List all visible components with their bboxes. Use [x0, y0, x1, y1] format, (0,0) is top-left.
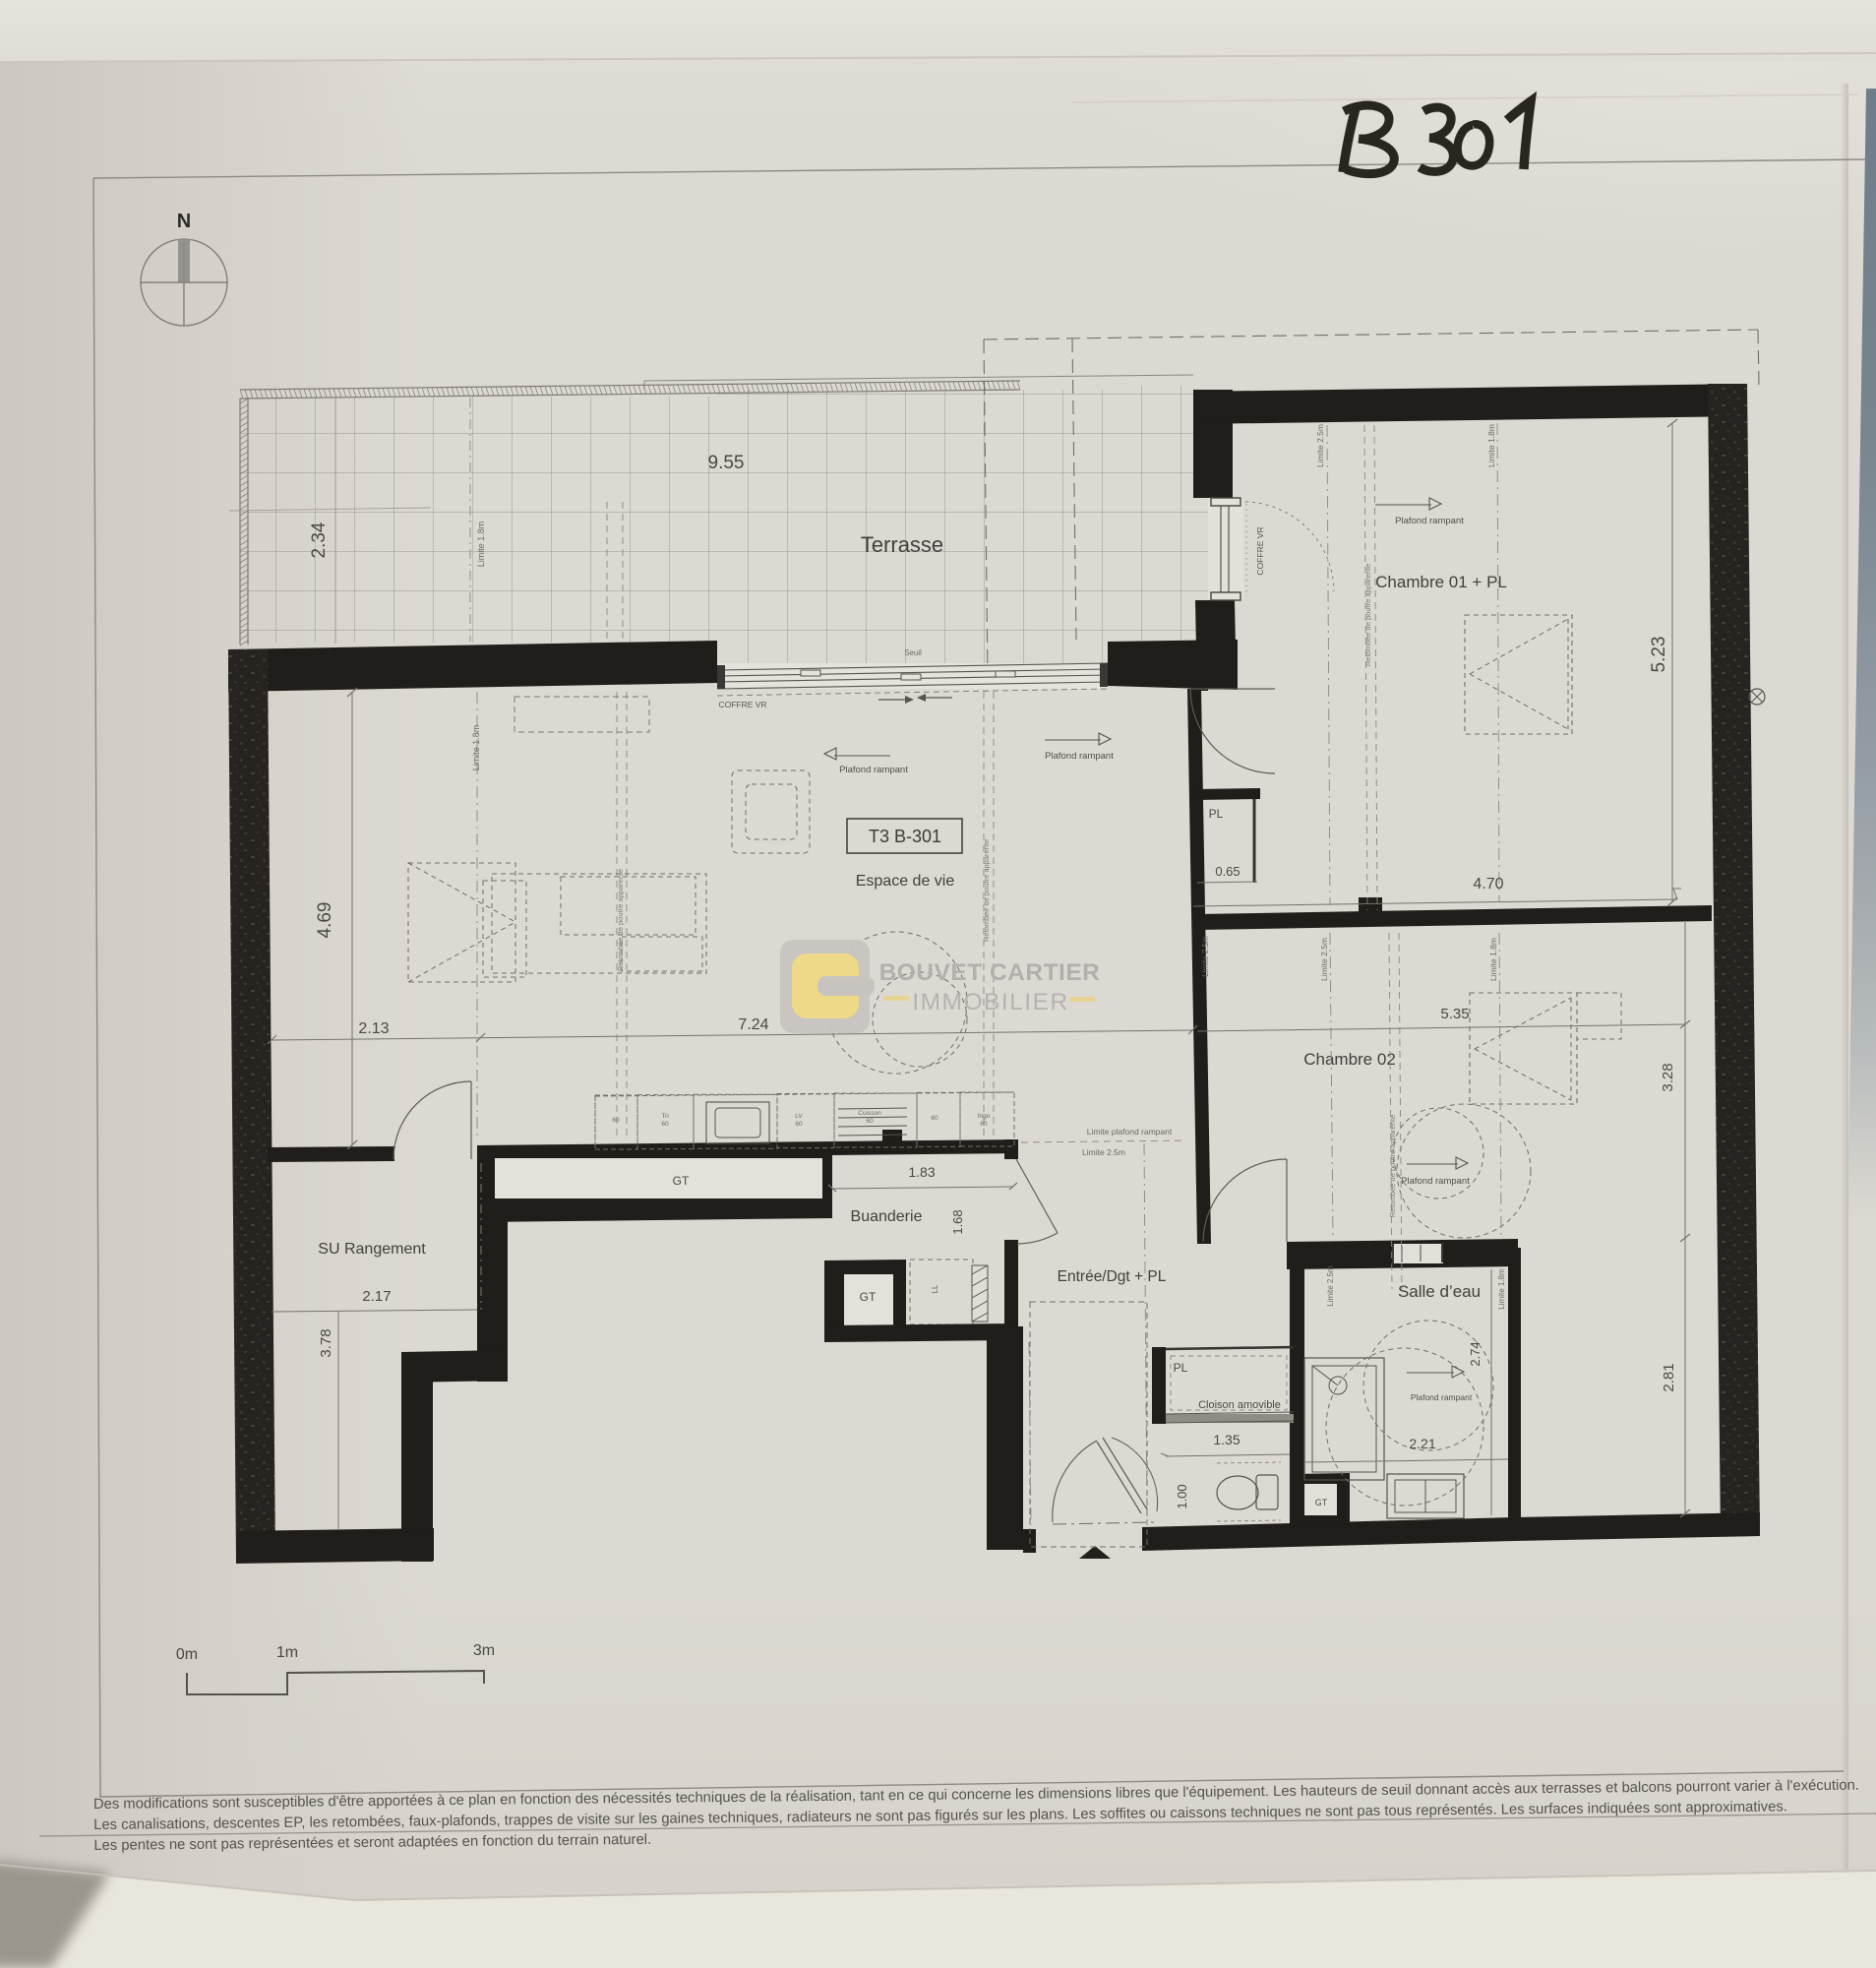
svg-text:Cuisson: Cuisson	[858, 1110, 881, 1117]
svg-text:Chambre 01 + PL: Chambre 01 + PL	[1375, 573, 1507, 591]
svg-text:LL: LL	[931, 1284, 939, 1293]
svg-text:5.23: 5.23	[1649, 637, 1669, 673]
svg-text:Limite 1.8m: Limite 1.8m	[1488, 938, 1498, 981]
svg-text:Tri: Tri	[661, 1113, 668, 1120]
svg-text:1.83: 1.83	[908, 1164, 935, 1180]
svg-text:3.78: 3.78	[318, 1328, 334, 1357]
svg-text:Buanderie: Buanderie	[851, 1208, 923, 1225]
svg-text:2.34: 2.34	[309, 522, 330, 558]
svg-text:Limite plafond rampant: Limite plafond rampant	[1087, 1127, 1173, 1137]
svg-text:2.74: 2.74	[1468, 1341, 1483, 1366]
svg-text:2.21: 2.21	[1409, 1436, 1435, 1451]
svg-text:frigo: frigo	[978, 1113, 991, 1120]
svg-text:Entrée/Dgt + PL: Entrée/Dgt + PL	[1058, 1268, 1167, 1285]
svg-text:GT: GT	[1315, 1498, 1328, 1507]
svg-text:Limite 2.5m: Limite 2.5m	[1082, 1147, 1125, 1157]
svg-text:IMMOBILIER: IMMOBILIER	[912, 989, 1068, 1015]
svg-text:2.17: 2.17	[362, 1288, 391, 1305]
svg-text:Chambre 02: Chambre 02	[1303, 1050, 1396, 1069]
svg-text:Limite 2.5m: Limite 2.5m	[1319, 938, 1329, 981]
svg-text:Retombée de poutre apparente: Retombée de poutre apparente	[616, 869, 625, 971]
svg-text:GT: GT	[673, 1174, 690, 1188]
svg-text:60: 60	[795, 1121, 803, 1128]
svg-text:60: 60	[980, 1121, 988, 1128]
svg-text:Seuil: Seuil	[904, 648, 922, 657]
svg-text:1.35: 1.35	[1213, 1432, 1240, 1447]
svg-text:Limite 1.8m: Limite 1.8m	[476, 522, 486, 568]
svg-text:5.35: 5.35	[1440, 1006, 1469, 1022]
svg-text:60: 60	[661, 1121, 669, 1128]
svg-text:Limite 2.5m: Limite 2.5m	[1201, 936, 1210, 977]
svg-text:60: 60	[612, 1117, 620, 1124]
svg-text:PL: PL	[1209, 807, 1224, 821]
svg-text:Plafond rampant: Plafond rampant	[1395, 516, 1464, 526]
svg-text:BOUVET CARTIER: BOUVET CARTIER	[879, 959, 1101, 986]
svg-text:Plafond rampant: Plafond rampant	[1045, 751, 1114, 762]
svg-text:7.24: 7.24	[738, 1016, 768, 1033]
svg-text:2.81: 2.81	[1661, 1363, 1677, 1391]
svg-text:60: 60	[866, 1118, 874, 1125]
svg-text:3.28: 3.28	[1660, 1063, 1676, 1091]
svg-text:1.00: 1.00	[1175, 1484, 1189, 1508]
svg-text:Retombée de poutre apparente: Retombée de poutre apparente	[1388, 1115, 1397, 1217]
svg-text:60: 60	[931, 1115, 938, 1122]
svg-text:4.69: 4.69	[315, 902, 335, 939]
svg-text:Plafond rampant: Plafond rampant	[1411, 1392, 1473, 1402]
svg-text:Limite 1.8m: Limite 1.8m	[471, 725, 481, 771]
svg-text:SU Rangement: SU Rangement	[318, 1241, 426, 1258]
svg-text:LV: LV	[795, 1113, 803, 1120]
svg-text:Limite 2.5m: Limite 2.5m	[1315, 424, 1325, 467]
svg-text:9.55: 9.55	[708, 453, 745, 473]
svg-text:Cloison amovible: Cloison amovible	[1198, 1399, 1281, 1411]
svg-text:Plafond rampant: Plafond rampant	[1401, 1176, 1470, 1187]
svg-text:4.70: 4.70	[1473, 876, 1503, 892]
svg-text:Limite 1.8m: Limite 1.8m	[1486, 424, 1496, 467]
svg-text:1.68: 1.68	[950, 1209, 965, 1234]
svg-text:Espace de vie: Espace de vie	[856, 873, 955, 890]
svg-text:Plafond rampant: Plafond rampant	[839, 765, 908, 775]
svg-text:2.13: 2.13	[358, 1020, 389, 1037]
svg-text:0.65: 0.65	[1215, 864, 1240, 879]
svg-text:COFFRE VR: COFFRE VR	[1255, 526, 1265, 575]
svg-text:T3 B-301: T3 B-301	[869, 827, 941, 846]
svg-text:N: N	[177, 211, 191, 232]
svg-text:Limite 2.5m: Limite 2.5m	[1326, 1265, 1335, 1307]
svg-text:1m: 1m	[276, 1644, 298, 1661]
svg-text:COFFRE VR: COFFRE VR	[718, 700, 766, 709]
svg-text:PL: PL	[1174, 1361, 1188, 1375]
svg-text:Limite 1.8m: Limite 1.8m	[1497, 1268, 1506, 1310]
svg-text:GT: GT	[860, 1290, 877, 1304]
svg-text:Les pentes ne sont pas représe: Les pentes ne sont pas représentées et s…	[93, 1832, 651, 1854]
svg-text:Retombée de poutre apparente: Retombée de poutre apparente	[982, 839, 991, 942]
svg-text:Retombée de poutre apparente: Retombée de poutre apparente	[1363, 564, 1372, 666]
svg-text:Terrasse: Terrasse	[861, 532, 943, 557]
svg-text:Salle d’eau: Salle d’eau	[1398, 1282, 1481, 1301]
svg-text:3m: 3m	[473, 1642, 495, 1659]
svg-text:0m: 0m	[176, 1646, 198, 1663]
